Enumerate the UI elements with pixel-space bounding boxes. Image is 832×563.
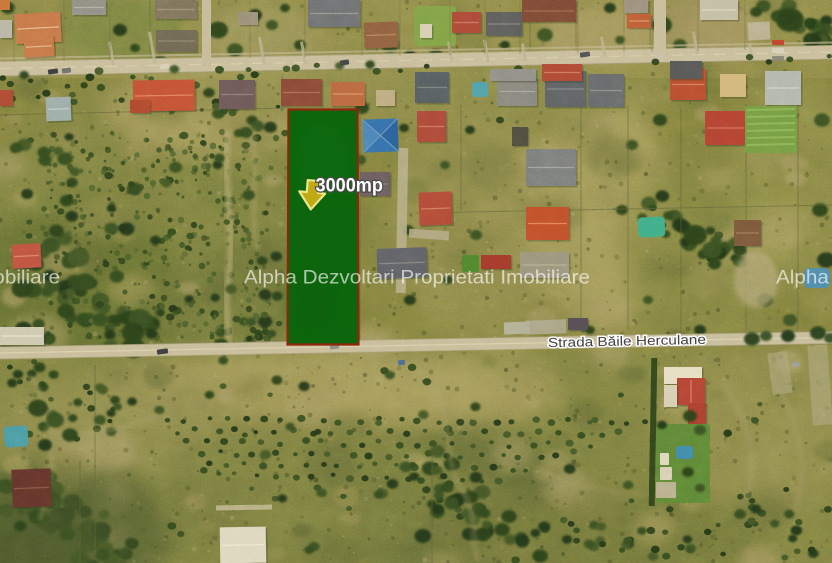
svg-text:3000mp: 3000mp	[316, 176, 384, 197]
svg-text:Alpha Dezvoltari Proprietati I: Alpha Dezvoltari Proprietati Imobiliare	[244, 267, 590, 289]
svg-text:Alpha Dezvoltari Proprietati I: Alpha Dezvoltari Proprietati Imobiliare	[0, 267, 60, 289]
svg-text:Alpha Dezvoltari Proprietati I: Alpha Dezvoltari Proprietati Imobiliare	[776, 267, 832, 289]
